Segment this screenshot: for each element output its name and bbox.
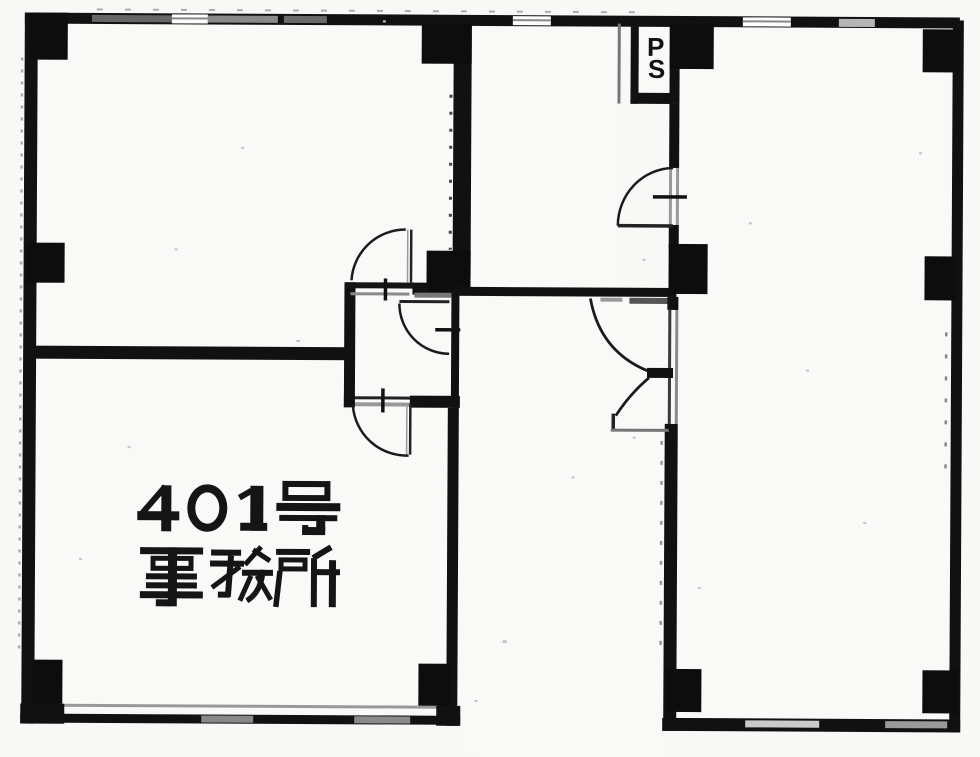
svg-text:S: S xyxy=(648,54,666,84)
